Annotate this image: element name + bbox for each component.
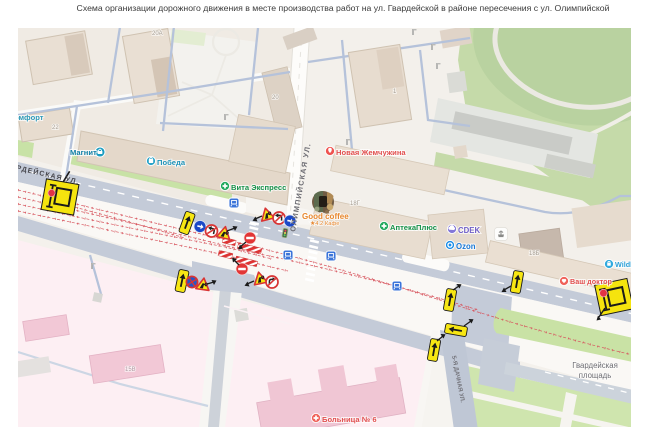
svg-text:Ваш доктор: Ваш доктор xyxy=(570,277,613,286)
svg-text:площадь: площадь xyxy=(579,371,612,380)
svg-text:Wildberries: Wildberries xyxy=(615,260,650,269)
svg-text:Магнит: Магнит xyxy=(70,148,97,157)
svg-text:15В: 15В xyxy=(125,367,136,373)
svg-text:Good coffee: Good coffee xyxy=(302,212,349,221)
svg-text:Больница № 6: Больница № 6 xyxy=(322,415,377,424)
svg-text:Ozon: Ozon xyxy=(456,242,476,251)
svg-text:омфорт: омфорт xyxy=(14,113,44,122)
svg-text:Гвардейская: Гвардейская xyxy=(572,361,618,370)
svg-text:18Г: 18Г xyxy=(350,201,361,207)
svg-text:20: 20 xyxy=(272,95,279,101)
svg-text:★4.2 Кафе: ★4.2 Кафе xyxy=(310,220,339,227)
svg-text:20А: 20А xyxy=(152,31,163,37)
svg-text:22: 22 xyxy=(52,125,59,131)
svg-text:Вита Экспресс: Вита Экспресс xyxy=(231,183,286,192)
svg-text:18Б: 18Б xyxy=(529,251,540,257)
svg-text:АптекаПлюс: АптекаПлюс xyxy=(390,223,437,232)
svg-text:CDEK: CDEK xyxy=(458,226,480,235)
svg-text:Победа: Победа xyxy=(157,158,186,167)
svg-text:Новая Жемчужина: Новая Жемчужина xyxy=(336,148,406,157)
